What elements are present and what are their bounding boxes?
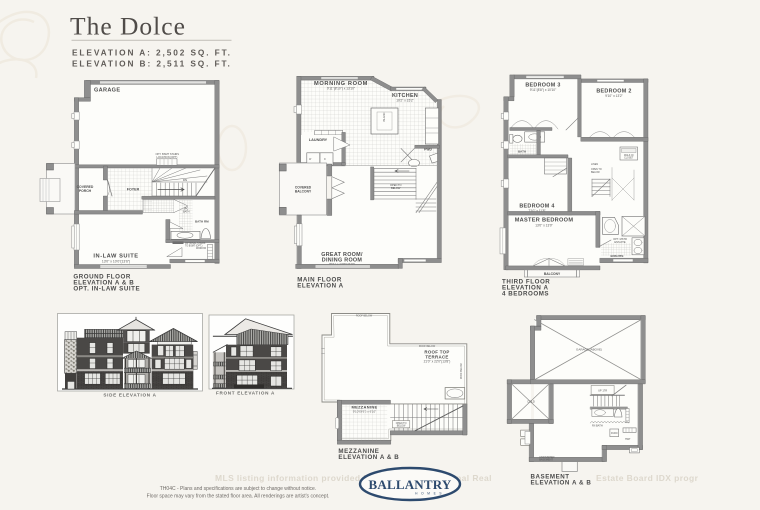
svg-text:COLD: COLD (527, 400, 535, 404)
svg-text:TH04C - Plans and specificatio: TH04C - Plans and specifications are sub… (160, 486, 316, 492)
svg-text:FOYER: FOYER (127, 188, 140, 192)
svg-text:HWT: HWT (625, 438, 631, 441)
svg-text:FRONT ELEVATION A: FRONT ELEVATION A (216, 391, 275, 396)
svg-text:BELOW: BELOW (591, 171, 600, 174)
svg-text:ISLAND: ISLAND (382, 113, 386, 122)
svg-text:GARAGE (ABOVE): GARAGE (ABOVE) (576, 348, 602, 352)
svg-text:Floor space may vary from the: Floor space may vary from the stated flo… (147, 494, 330, 500)
svg-text:CLOSET: CLOSET (624, 157, 634, 159)
svg-text:Estate Board IDX progr: Estate Board IDX progr (596, 473, 699, 483)
svg-text:OPTIONAL STAIRS: OPTIONAL STAIRS (185, 242, 206, 245)
svg-text:WALK IN: WALK IN (624, 154, 634, 157)
svg-text:BELOW: BELOW (397, 425, 406, 428)
svg-text:R/I BATH: R/I BATH (592, 424, 603, 428)
svg-text:WINDOW: WINDOW (196, 248, 207, 250)
svg-text:BATH: BATH (183, 210, 190, 213)
svg-text:PWD: PWD (424, 147, 432, 151)
svg-text:ROOF BELOW: ROOF BELOW (419, 345, 436, 348)
svg-text:BASEMENT: BASEMENT (539, 459, 553, 462)
svg-text:DN: DN (183, 178, 187, 182)
svg-text:9'11"(8'8") x 10'10": 9'11"(8'8") x 10'10" (530, 88, 556, 92)
svg-text:9'10"(9'6") x 6'10": 9'10"(9'6") x 6'10" (353, 410, 376, 414)
svg-text:ELEVATION A: ELEVATION A (297, 283, 344, 290)
svg-text:BALCONY: BALCONY (295, 190, 312, 194)
svg-text:SIDE ELEVATION A: SIDE ELEVATION A (103, 393, 156, 398)
svg-text:13'0" x 13'0": 13'0" x 13'0" (535, 224, 552, 228)
svg-text:BELOW: BELOW (391, 186, 401, 190)
svg-text:9'11"(8'10") x 13'10": 9'11"(8'10") x 13'10" (327, 87, 355, 91)
svg-text:ELEVATION A: 2,502 SQ. FT.: ELEVATION A: 2,502 SQ. FT. (72, 48, 232, 58)
svg-text:The Dolce: The Dolce (70, 12, 186, 41)
svg-text:LAUNDRY: LAUNDRY (309, 138, 328, 142)
svg-text:9'10" x 13'2": 9'10" x 13'2" (605, 94, 622, 98)
svg-text:PORCH: PORCH (79, 189, 92, 193)
svg-text:ROOF BELOW: ROOF BELOW (461, 363, 463, 379)
svg-text:D: D (324, 158, 326, 161)
svg-text:GARAGE: GARAGE (94, 88, 120, 94)
svg-text:ELEVATION A & B: ELEVATION A & B (338, 454, 399, 461)
svg-text:ELEVATION B: 2,511 SQ. FT.: ELEVATION B: 2,511 SQ. FT. (72, 59, 232, 69)
svg-text:4 BEDROOMS: 4 BEDROOMS (502, 291, 549, 298)
svg-text:BALCONY: BALCONY (544, 272, 561, 276)
svg-text:21'0" x 22'0"(13'8"): 21'0" x 22'0"(13'8") (424, 360, 451, 364)
svg-text:ROOF BELOW: ROOF BELOW (356, 314, 373, 317)
svg-text:LOCATION (OPT): LOCATION (OPT) (157, 155, 178, 159)
svg-text:10'2" x 15'2": 10'2" x 15'2" (396, 99, 413, 103)
svg-text:UP 17R: UP 17R (598, 388, 607, 392)
svg-text:13'0" x 10'0"(13'6"): 13'0" x 10'0"(13'6") (102, 259, 130, 263)
svg-text:OPT. IN-LAW SUITE: OPT. IN-LAW SUITE (73, 286, 140, 293)
svg-text:ELEVATION A & B: ELEVATION A & B (531, 480, 592, 487)
svg-text:BATH RM: BATH RM (195, 220, 209, 224)
svg-text:H O M E S: H O M E S (415, 492, 443, 496)
svg-text:ENSUITE: ENSUITE (610, 254, 623, 258)
svg-text:BALLANTRY: BALLANTRY (369, 477, 452, 492)
svg-text:FURN: FURN (611, 433, 618, 435)
svg-text:LINEN: LINEN (591, 163, 598, 166)
